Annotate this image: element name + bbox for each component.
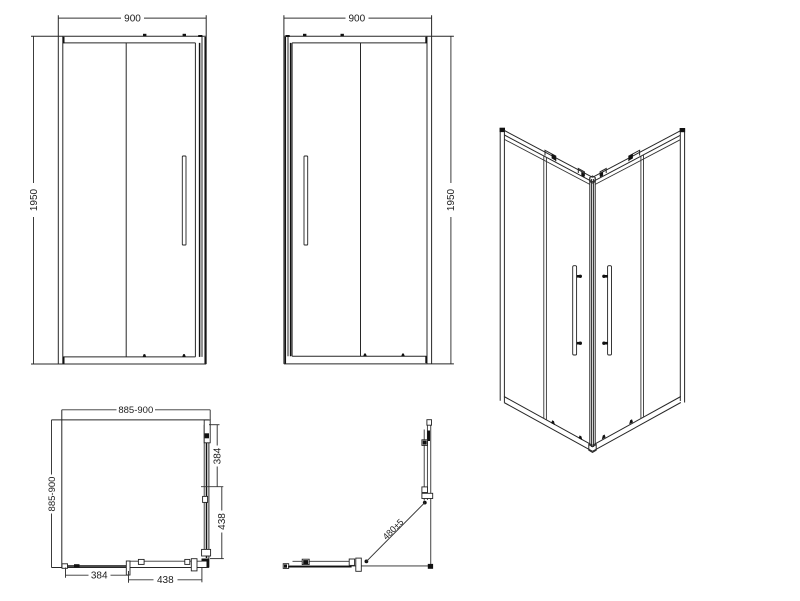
svg-text:1950: 1950 [29, 188, 40, 211]
svg-text:384: 384 [212, 447, 223, 464]
svg-text:900: 900 [348, 14, 365, 25]
svg-text:438: 438 [157, 575, 174, 586]
svg-text:384: 384 [91, 571, 108, 582]
svg-text:900: 900 [124, 14, 141, 25]
svg-text:438: 438 [217, 513, 228, 530]
svg-text:1950: 1950 [446, 188, 457, 211]
svg-text:885-900: 885-900 [47, 477, 58, 512]
svg-text:885-900: 885-900 [118, 405, 153, 416]
